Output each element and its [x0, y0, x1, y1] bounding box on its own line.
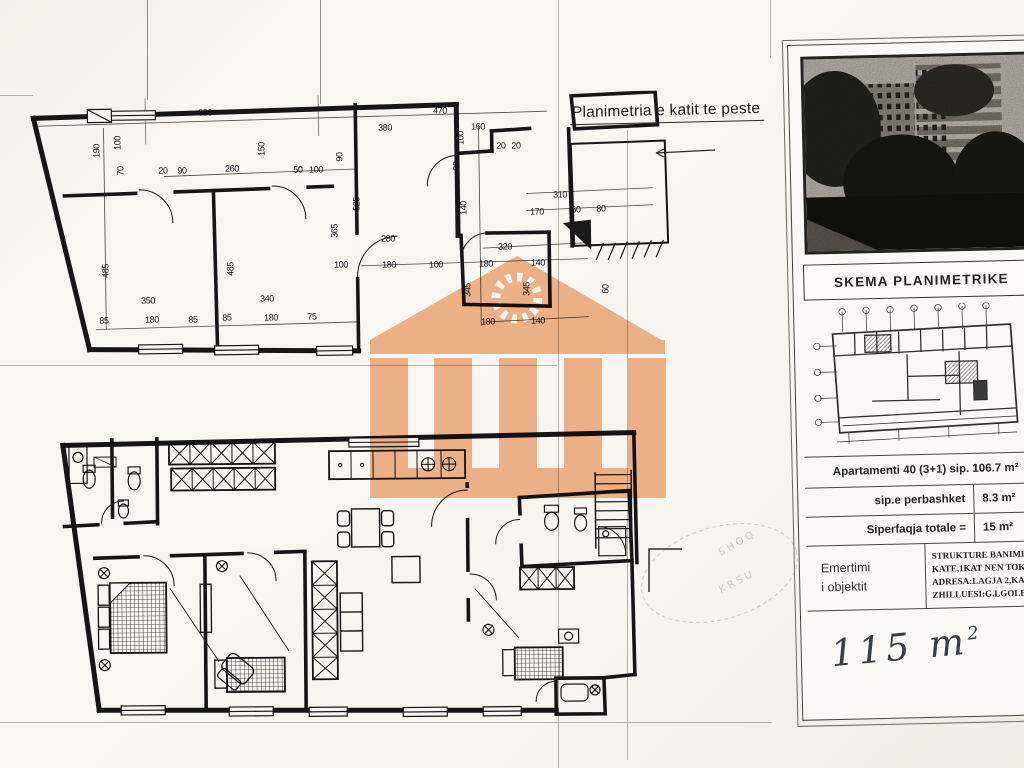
apartment-label: Apartamenti 40 (3+1) sip. 106.7 m² — [833, 462, 1019, 478]
photo-section — [788, 40, 1024, 261]
grid-centerline — [320, 0, 321, 104]
object-name-label: Emertimi i objektit — [806, 544, 925, 611]
fold-line — [0, 95, 33, 96]
handwritten-area-value: 115 m2 — [829, 619, 981, 676]
title-block-panel: SKEMA PLANIMETRIKE — [787, 39, 1024, 721]
object-details: STRUKTURE BANIMI 4-8 KATE,1KAT NEN TOKE … — [924, 541, 1024, 608]
total-area-label: Siperfaqja totale = — [806, 522, 974, 538]
area-table: Apartamenti 40 (3+1) sip. 106.7 m² sip.e… — [804, 451, 1024, 727]
fold-line — [0, 722, 772, 723]
shared-area-label: sip.e perbashket — [805, 493, 973, 509]
fold-line — [770, 0, 771, 58]
building-photo — [800, 51, 1024, 254]
svg-text:SHOQ: SHOQ — [717, 528, 759, 558]
svg-text:KRSU: KRSU — [717, 568, 757, 596]
object-name-row: Emertimi i objektit STRUKTURE BANIMI 4-8… — [806, 541, 1024, 611]
scanned-blueprint-sheet: 3204703801602090260501002801001801001801… — [0, 0, 1024, 768]
site-plan-thumbnail — [802, 297, 1024, 456]
shared-area-value: 8.3 m² — [973, 483, 1024, 513]
round-stamp: SHOQ KRSU — [630, 515, 810, 635]
builder-logo-watermark — [368, 252, 668, 500]
leader-arrow — [640, 140, 720, 170]
schema-header: SKEMA PLANIMETRIKE — [803, 259, 1024, 300]
plan-title: Planimetria e katit te peste — [570, 100, 765, 125]
grid-centerline — [147, 0, 148, 100]
total-area-value: 15 m² — [974, 512, 1024, 542]
table-row-apartment: Apartamenti 40 (3+1) sip. 106.7 m² — [804, 452, 1024, 488]
handwritten-area-cell: 115 m2 — [808, 606, 1024, 727]
